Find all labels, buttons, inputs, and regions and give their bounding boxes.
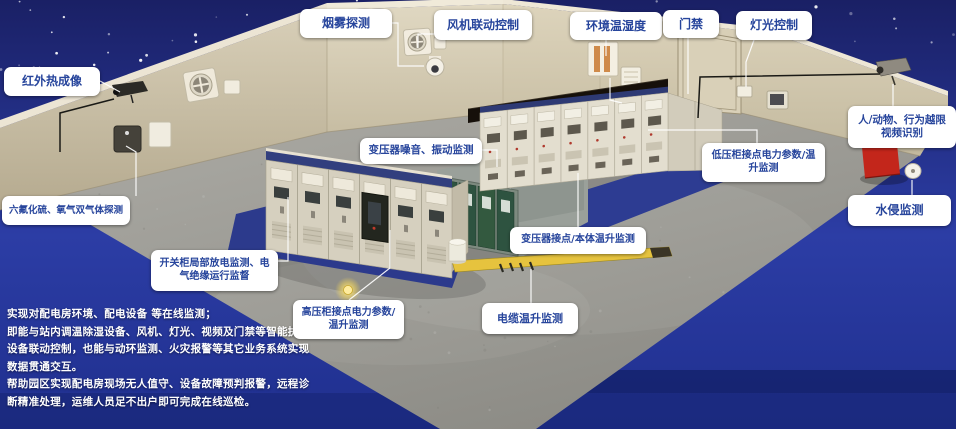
description-line: 帮助园区实现配电房现场无人值守、设备故障预判报警，远程诊 — [7, 376, 309, 394]
callout-cable-temp: 电缆温升监测 — [482, 303, 578, 334]
callout-video-recognition: 人/动物、行为越限视频识别 — [848, 106, 956, 148]
callout-smoke-detection: 烟雾探测 — [300, 9, 392, 38]
floor-cylinder-sensor — [449, 239, 466, 264]
callout-env-temp-humidity: 环境温湿度 — [570, 12, 662, 40]
description-line: 实现对配电房环境、配电设备 等在线监测； — [7, 306, 309, 324]
wall-panel-white — [149, 122, 171, 147]
callout-hv-cabinet-monitoring: 高压柜接点电力参数/温升监测 — [293, 300, 404, 339]
floodlight — [767, 91, 788, 109]
gas-sensor-led — [125, 131, 129, 135]
callout-fan-linkage-control: 风机联动控制 — [434, 10, 532, 40]
callout-door-access: 门禁 — [663, 10, 719, 38]
callout-transformer-temp: 变压器接点/本体温升监测 — [510, 227, 646, 254]
description-line: 断精准处理，运维人员足不出户即可完成在线巡检。 — [7, 394, 309, 412]
water-intrusion-sensor — [905, 164, 921, 179]
heater-panel — [588, 42, 618, 76]
wall-box-left — [224, 80, 240, 94]
callout-switchgear-pd: 开关柜局部放电监测、电气绝缘运行监督 — [151, 250, 278, 291]
exhaust-fan-left — [183, 67, 220, 102]
callout-infrared-thermal: 红外热成像 — [4, 67, 100, 96]
system-description: 实现对配电房环境、配电设备 等在线监测； 即能与站内调温除湿设备、风机、灯光、视… — [7, 306, 309, 411]
description-line: 设备联动控制，也能与动环监测、火灾报警等其它业务系统实现 — [7, 341, 309, 359]
callout-light-control: 灯光控制 — [736, 11, 812, 40]
callout-lv-cabinet-monitoring: 低压柜接点电力参数/温升监测 — [702, 143, 825, 182]
callout-dual-gas-detection: 六氟化硫、氧气双气体探测 — [2, 196, 130, 225]
gas-sensor — [114, 126, 141, 152]
description-line: 数据贯通交互。 — [7, 359, 309, 377]
power-room-monitoring-illustration: 烟雾探测 风机联动控制 环境温湿度 门禁 灯光控制 红外热成像 人/动物、行为越… — [0, 0, 956, 429]
light-switch — [737, 86, 752, 97]
callout-water-intrusion: 水侵监测 — [848, 195, 951, 226]
callout-transformer-noise: 变压器噪音、振动监测 — [360, 138, 482, 164]
description-line: 即能与站内调温除湿设备、风机、灯光、视频及门禁等智能执行 — [7, 324, 309, 342]
